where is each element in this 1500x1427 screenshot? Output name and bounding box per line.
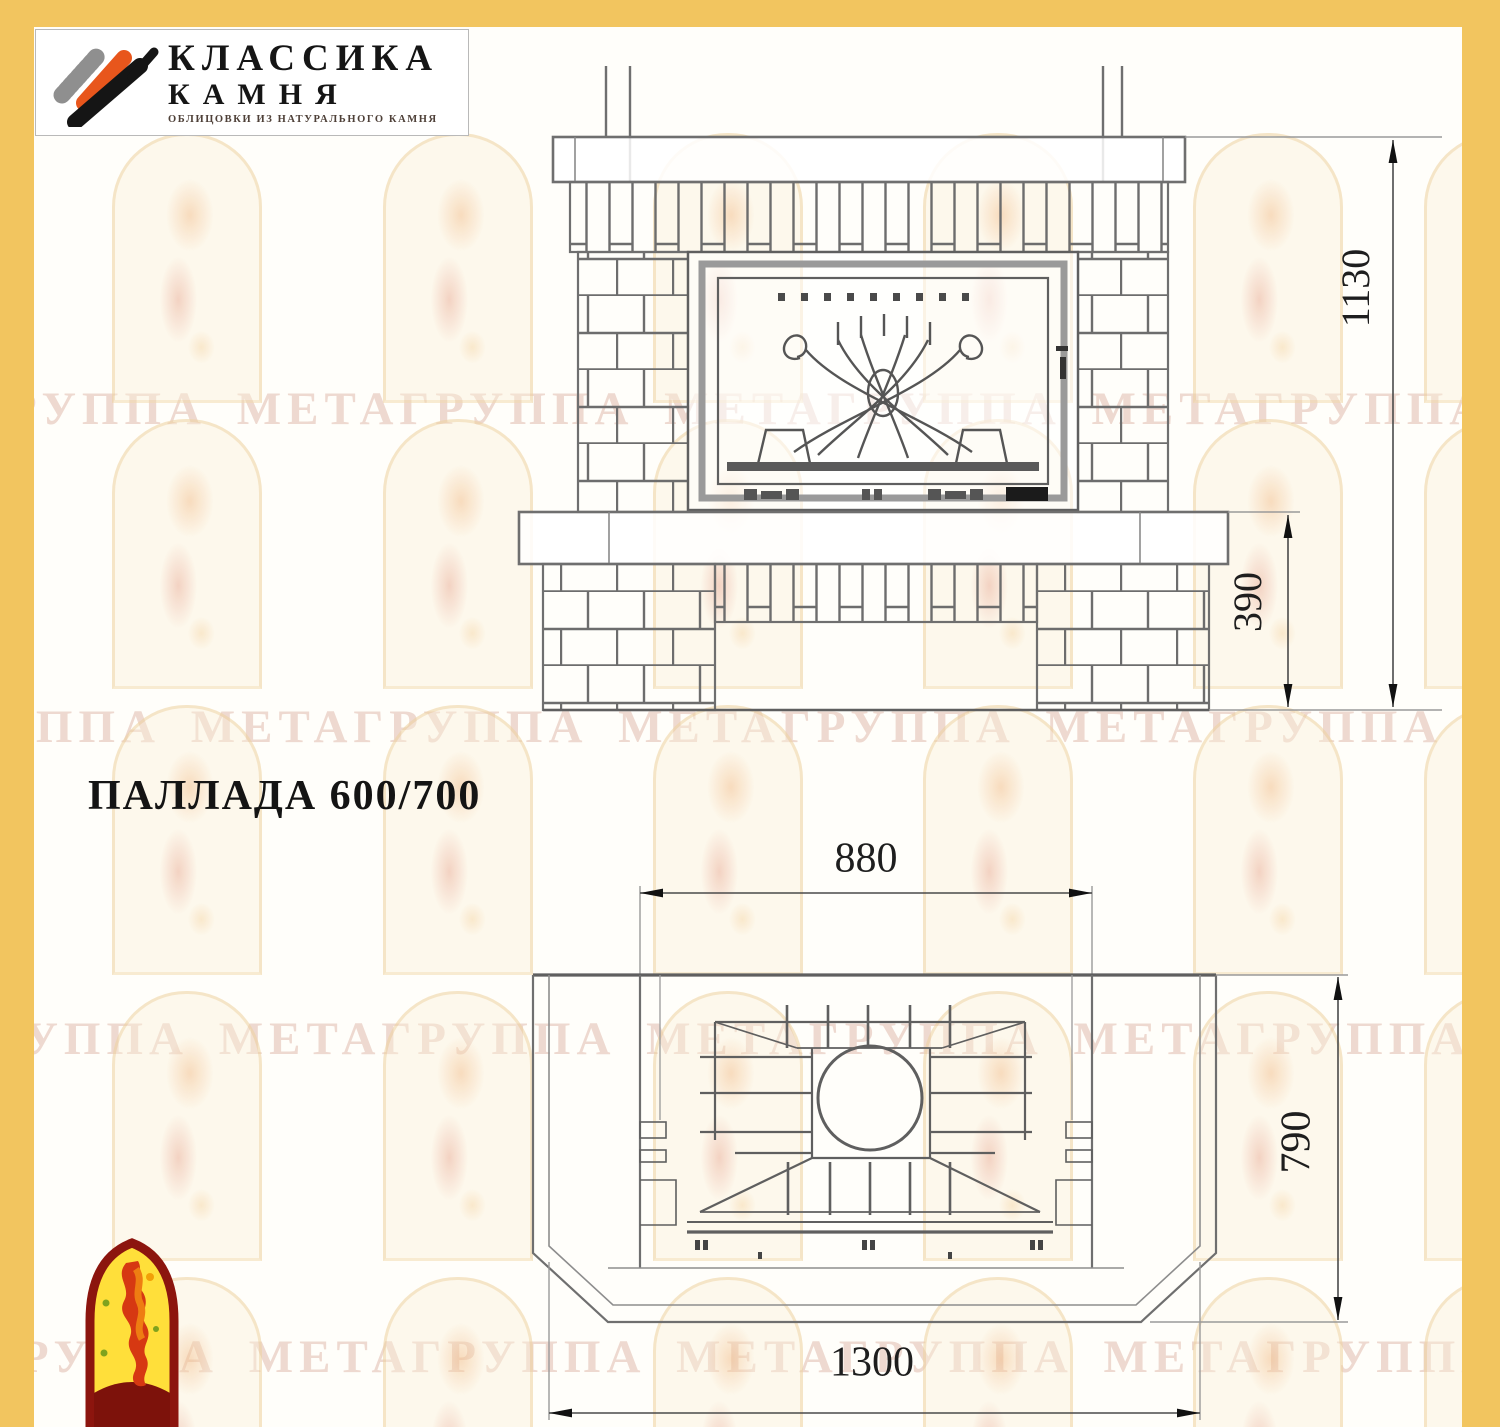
arrow-right-icon [1177,1409,1200,1418]
brand-text-block: КЛАССИКА КАМНЯ ОБЛИЦОВКИ ИЗ НАТУРАЛЬНОГО… [168,40,439,126]
base-right-bricks [1037,564,1209,710]
dim-label-front-base-height: 390 [1225,572,1270,632]
arrow-left-icon [640,889,663,898]
brand-logo-icon [44,39,162,127]
arrow-up-icon [1334,977,1343,1000]
arrow-down-icon [1389,684,1398,707]
insert-top-view [640,1005,1092,1259]
brand-title-line1: КЛАССИКА [168,40,439,77]
page-border-right [1462,0,1500,1427]
brand-logo: КЛАССИКА КАМНЯ ОБЛИЦОВКИ ИЗ НАТУРАЛЬНОГО… [35,29,469,136]
mantel-shelf [553,137,1185,182]
flame-logo-base [94,1382,170,1427]
left-brick-column [578,252,688,512]
dim-label-plan-depth: 790 [1274,1111,1320,1174]
flue-collar-circle [818,1046,922,1150]
model-title: ПАЛЛАДА 600/700 [88,772,481,820]
dim-label-plan-opening-width: 880 [835,836,898,882]
glass-bottom-bar [727,462,1039,471]
dim-label-front-total-height: 1130 [1333,249,1378,328]
page-border-top [0,0,1500,27]
top-fins [787,1005,950,1048]
base-soldier-course [715,564,1037,622]
arrow-right-icon [1069,889,1092,898]
dimension-front-total-height: 1130 [1185,137,1442,710]
right-ribs [930,1057,1032,1153]
base-left-bricks [543,564,715,710]
dimension-plan-depth: 790 [1150,975,1348,1322]
right-brick-column [1078,252,1168,512]
plan-outline-inner [549,975,1200,1305]
brand-tagline: ОБЛИЦОВКИ ИЗ НАТУРАЛЬНОГО КАМНЯ [168,115,439,126]
soldier-course-top [570,182,1168,252]
dimension-plan-total-width: 1300 [549,1262,1200,1420]
page-border-left [0,0,34,1427]
arrow-down-icon [1334,1297,1343,1320]
bottom-fins [788,1162,950,1215]
firebox-insert [688,252,1078,510]
arrow-up-icon [1284,515,1293,538]
front-view: 1130 390 [519,66,1442,710]
arrow-left-icon [549,1409,572,1418]
fireplace-base [543,564,1209,710]
vent-holes-row [778,293,969,301]
hearth-shelf [519,512,1228,564]
dimension-front-base-height: 390 [1225,512,1300,707]
insert-feet-marks [695,1240,1043,1259]
extension-lines [640,886,1092,975]
brand-title-line2: КАМНЯ [168,80,439,110]
arrow-up-icon [1389,140,1398,163]
dim-label-plan-total-width: 1300 [830,1340,914,1386]
dimension-plan-opening-width: 880 [640,836,1092,975]
fireplace-technical-drawing: 1130 390 880 [0,0,1500,1427]
plan-view: 880 [533,836,1348,1420]
spec-sheet-page: ГРУППА МЕТАГРУППА МЕТАГРУППА МЕТАГРУППА … [0,0,1500,1427]
flame-arch-logo [80,1233,184,1427]
extension-lines [1185,137,1442,710]
left-ribs [700,1057,812,1153]
arrow-down-icon [1284,684,1293,707]
